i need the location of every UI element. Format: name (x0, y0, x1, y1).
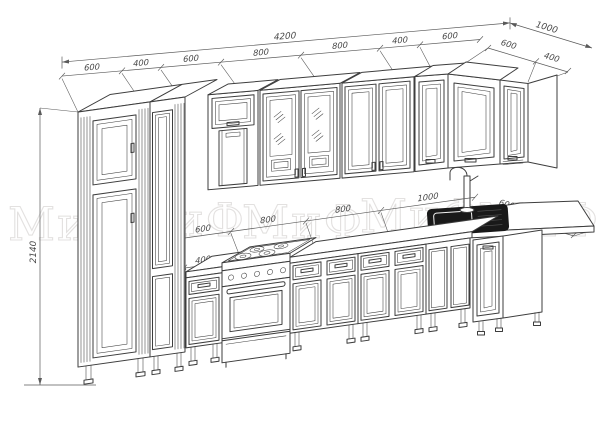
dim-label-overall-height: 2140 (29, 240, 39, 263)
hood-chimney (219, 128, 247, 185)
base-cabinet-return (473, 230, 542, 335)
dim-label-upper-7: 600 (442, 30, 458, 41)
dim-label-upper-2: 400 (133, 57, 149, 68)
kitchen-drawing: МиФ МиФ МиФ МиФ МиФ 4200 600 400 60 (0, 0, 600, 424)
dim-label-upper-right-2: 400 (543, 50, 561, 64)
upper-cabinet-return (500, 75, 557, 168)
dim-label-upper-1: 600 (84, 61, 100, 72)
oven-door (222, 277, 290, 339)
dim-label-upper-3: 600 (183, 53, 199, 64)
dim-label-overall-depth: 1000 (534, 20, 559, 36)
dim-label-upper-5: 800 (332, 40, 348, 51)
base-cabinet-800-a (290, 254, 358, 352)
base-cabinet-800-b (358, 244, 426, 342)
dim-label-overall-width: 4200 (274, 31, 297, 43)
dim-label-upper-6: 400 (392, 34, 408, 45)
dim-label-upper-right-1: 600 (500, 37, 518, 51)
base-cabinet-drawer-400 (186, 273, 222, 366)
base-cabinet-sink (426, 238, 470, 332)
dim-label-upper-4: 800 (253, 46, 269, 57)
